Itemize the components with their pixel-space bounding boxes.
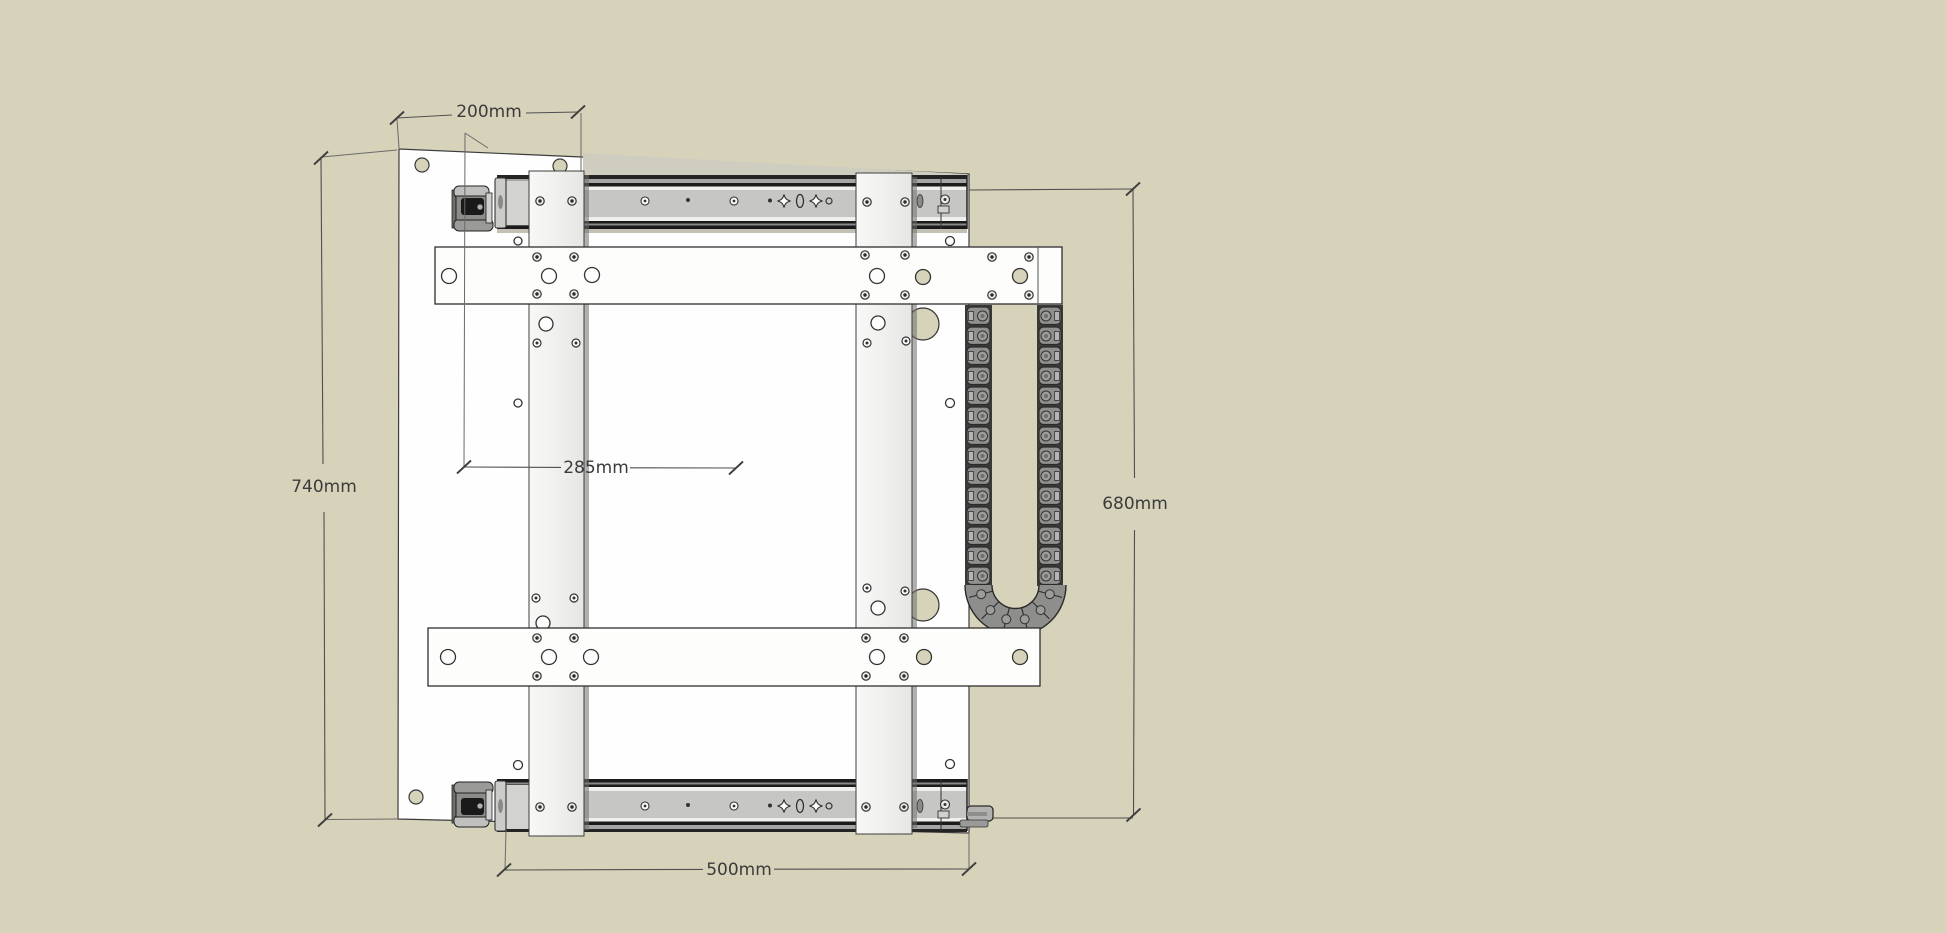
dimension-label-right-height: 680mm bbox=[1102, 494, 1168, 514]
cad-viewport: 200mm 740mm 285mm 680mm 500mm bbox=[0, 0, 1946, 933]
slide-front-bracket bbox=[452, 782, 493, 827]
inner-slide-member bbox=[505, 181, 530, 225]
dimension-label-left-height: 740mm bbox=[291, 477, 357, 497]
inner-slide-member bbox=[505, 785, 530, 829]
top-cross-plate bbox=[435, 247, 1062, 304]
dimension-label-top-width: 200mm bbox=[456, 102, 522, 122]
bottom-cross-plate bbox=[428, 628, 1040, 686]
dimension-label-bottom-slide-length: 500mm bbox=[706, 860, 772, 880]
cad-drawing: 200mm 740mm 285mm 680mm 500mm bbox=[0, 0, 1946, 933]
dimension-label-center-offset: 285mm bbox=[563, 458, 629, 478]
slide-front-bracket bbox=[452, 186, 493, 231]
